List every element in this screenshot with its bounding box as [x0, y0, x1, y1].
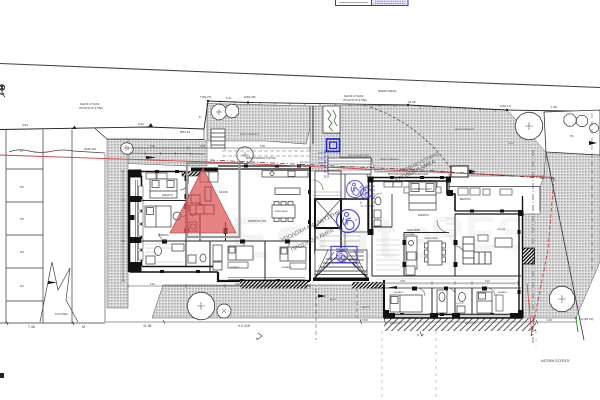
svg-text:Ρ4: Ρ4 — [20, 284, 24, 288]
svg-text:ΣΑΛΟΝΙ: ΣΑΛΟΝΙ — [497, 228, 506, 231]
svg-text:ΧΩΡΟΣ ΠΡΑΣΙΝΟΥ: ΧΩΡΟΣ ΠΡΑΣΙΝΟΥ — [240, 133, 260, 136]
svg-text:3.90: 3.90 — [150, 145, 155, 148]
svg-text:9.32: 9.32 — [138, 122, 144, 126]
svg-text:Σ(54.17): Σ(54.17) — [500, 104, 511, 108]
svg-text:8/53.36: 8/53.36 — [180, 130, 190, 134]
svg-text:ΚΑΛ./ΠΕΖ: ΚΑΛ./ΠΕΖ — [55, 312, 68, 316]
svg-text:17.80: 17.80 — [360, 318, 368, 322]
svg-text:ΚΑΤΟΨΗ ΙΣΟΓΕΙΟΥ: ΚΑΤΟΨΗ ΙΣΟΓΕΙΟΥ — [541, 359, 571, 363]
svg-text:ΦΡΕΑΡ ΑΝΕΛΚ.: ΦΡΕΑΡ ΑΝΕΛΚ. — [378, 89, 397, 93]
svg-text:3.50: 3.50 — [400, 280, 405, 283]
svg-text:ΒΕΡΑΝΤΑ: ΒΕΡΑΝΤΑ — [460, 198, 471, 201]
svg-text:50.ΧΧ: 50.ΧΧ — [508, 143, 515, 145]
svg-text:ΔΩΜΑΤΙΟ: ΔΩΜΑΤΙΟ — [282, 266, 292, 269]
svg-text:2.45: 2.45 — [200, 145, 205, 148]
svg-text:2.80: 2.80 — [235, 283, 240, 286]
svg-text:Λ 0.41Κ: Λ 0.41Κ — [238, 324, 251, 328]
svg-text:1.98: 1.98 — [551, 105, 557, 109]
svg-text:Ν: Ν — [417, 334, 419, 337]
svg-text:11.36: 11.36 — [143, 324, 152, 328]
svg-text:Τ(03.27): Τ(03.27) — [200, 95, 211, 99]
svg-text:ΜΠΕΤΟΝΕΝΙΟΣ ΤΟΙΧΟΣ: ΜΠΕΤΟΝΕΝΙΟΣ ΤΟΙΧΟΣ — [246, 156, 276, 160]
svg-text:ΔΩΜΑΤΙΟ: ΔΩΜΑΤΙΟ — [158, 234, 169, 237]
svg-text:3.10: 3.10 — [485, 280, 490, 283]
svg-text:Ρ4: Ρ4 — [20, 250, 24, 254]
svg-text:ΜΠΕΤΟΝΕΝΙΟΣ ΤΟΙΧΟΣ: ΜΠΕΤΟΝΕΝΙΟΣ ΤΟΙΧΟΣ — [405, 180, 433, 183]
svg-text:5.95: 5.95 — [260, 145, 265, 148]
svg-text:Ρ5: Ρ5 — [20, 217, 24, 221]
svg-text:ΣΑΛΟΝΙ: ΣΑΛΟΝΙ — [219, 191, 228, 194]
svg-text:ΚΑΘΙΣΤΙΚΟ ΧΩΛ: ΚΑΘΙΣΤΙΚΟ ΧΩΛ — [248, 220, 267, 223]
svg-text:ΔΩΜΑΤΙΟ: ΔΩΜΑΤΙΟ — [162, 194, 173, 197]
svg-text:ΕΙΣΟΔΟΣ: ΕΙΣΟΔΟΣ — [300, 161, 310, 164]
svg-text:ΧΩΡΟΣ ΠΡΑΣΙΝΟΥ: ΧΩΡΟΣ ΠΡΑΣΙΝΟΥ — [380, 158, 400, 161]
svg-text:ΒΛ 2/Λ 0.12: ΒΛ 2/Λ 0.12 — [390, 323, 402, 325]
svg-text:ΛΟΥΤΡΟ: ΛΟΥΤΡΟ — [456, 303, 465, 305]
svg-text:Πρ(66.23): Πρ(66.23) — [580, 317, 593, 321]
svg-text:ΤΡΑΠΕΖΑΡΙΑ: ΤΡΑΠΕΖΑΡΙΑ — [274, 210, 288, 213]
svg-text:ΔΩΜΑΤΙΟ: ΔΩΜΑΤΙΟ — [498, 291, 508, 294]
svg-text:ΔΙΑΔ./ΤΕΡΑ: ΔΙΑΔ./ΤΕΡΑ — [407, 229, 420, 232]
svg-text:Μ: Μ — [82, 325, 85, 329]
svg-text:ΔΩΜΑΤΙΟ: ΔΩΜΑΤΙΟ — [418, 214, 429, 217]
svg-text:ΚΑΘΙΣΤΙΚΟ ΕΞΩΤ.: ΚΑΘΙΣΤΙΚΟ ΕΞΩΤ. — [412, 188, 432, 191]
svg-text:Β: Β — [256, 337, 258, 341]
svg-text:18.38: 18.38 — [408, 100, 416, 104]
svg-text:Ρ1: Ρ1 — [570, 134, 574, 138]
svg-text:Ρ6: Ρ6 — [20, 185, 24, 189]
svg-text:4.10: 4.10 — [150, 283, 155, 286]
svg-text:ΔΩΜΑΤΙΟ: ΔΩΜΑΤΙΟ — [230, 266, 240, 269]
svg-text:2.4γ: 2.4γ — [226, 96, 232, 100]
svg-text:ΠΕΡΓΚΟΛΑ ΕΙΣΟΔΟΥ: ΠΕΡΓΚΟΛΑ ΕΙΣΟΔΟΥ — [348, 154, 370, 157]
svg-text:ΑΥΛΗ: ΑΥΛΗ — [330, 298, 336, 301]
svg-text:4.33: 4.33 — [546, 318, 552, 322]
svg-text:0.94: 0.94 — [22, 123, 28, 127]
svg-text:7.46: 7.46 — [28, 325, 35, 329]
svg-text:ΔΩΜΑΤΙΟ: ΔΩΜΑΤΙΟ — [394, 291, 404, 294]
svg-text:Δ(53.38): Δ(53.38) — [244, 95, 256, 99]
svg-text:(ΠΛΑΤΟΥΣ 3.95μ): (ΠΛΑΤΟΥΣ 3.95μ) — [343, 98, 367, 102]
svg-text:(ΠΛΑΤΟΥΣ 3.95μ): (ΠΛΑΤΟΥΣ 3.95μ) — [79, 106, 103, 110]
svg-text:ΚΗΠΟΣ: ΚΗΠΟΣ — [362, 307, 370, 309]
svg-text:ΧΩΡΟΣ ΠΡΑΣΙΝΟΥ: ΧΩΡΟΣ ΠΡΑΣΙΝΟΥ — [455, 128, 475, 131]
svg-text:ΒΛ 2/Λ 0.12: ΒΛ 2/Λ 0.12 — [465, 323, 477, 325]
svg-text:ΚΟΥΖΙΝΑ: ΚΟΥΖΙΝΑ — [405, 233, 415, 236]
svg-text:ΤΡΑΠΕΖΑΡΙΑ: ΤΡΑΠΕΖΑΡΙΑ — [424, 237, 438, 240]
svg-text:ΑΣΦ./ΟΔ: ΑΣΦ./ΟΔ — [84, 147, 96, 151]
